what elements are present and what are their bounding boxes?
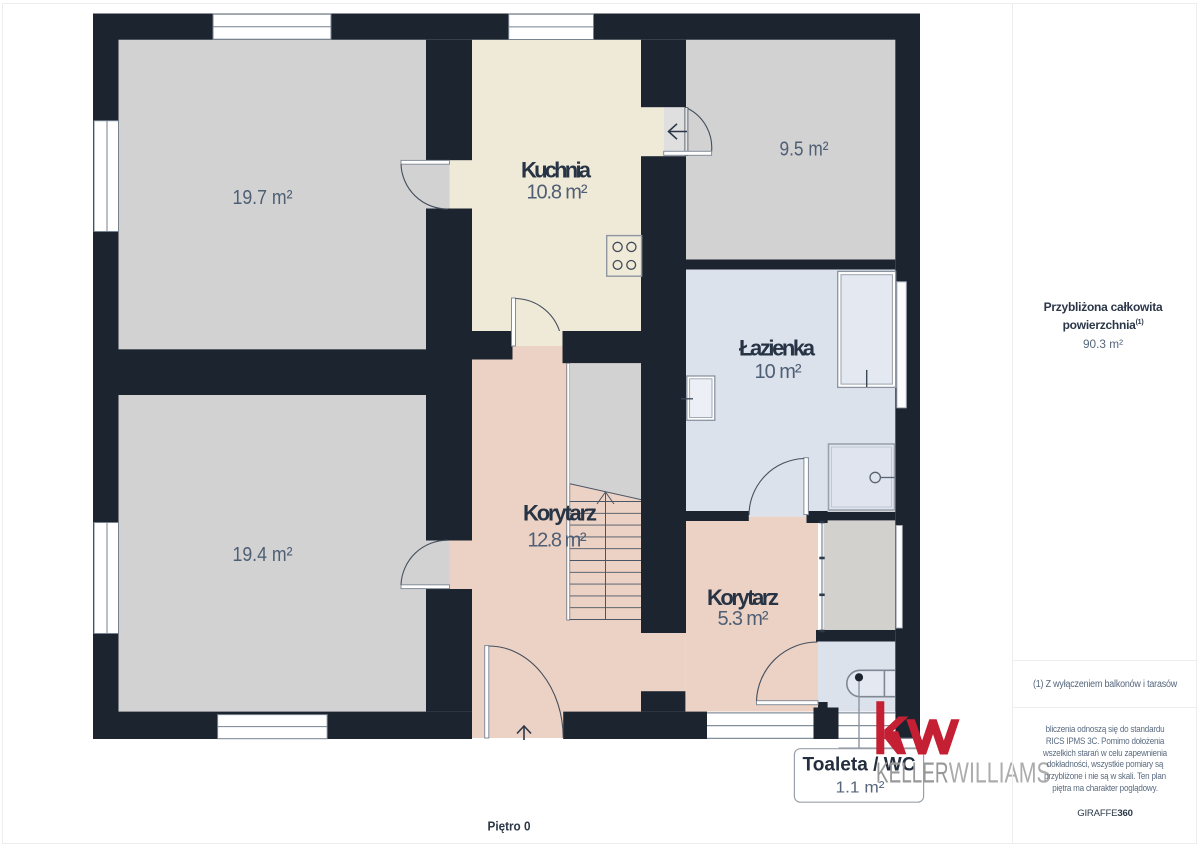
svg-text:Kuchnia: Kuchnia	[521, 158, 592, 183]
svg-text:19.4 m²: 19.4 m²	[233, 544, 293, 566]
svg-text:KELLER: KELLER	[876, 758, 949, 790]
svg-text:12.8 m²: 12.8 m²	[528, 530, 587, 552]
svg-text:Korytarz: Korytarz	[707, 585, 779, 610]
svg-text:19.7 m²: 19.7 m²	[233, 187, 293, 209]
svg-text:5.3 m²: 5.3 m²	[718, 608, 769, 630]
svg-text:10 m²: 10 m²	[755, 361, 802, 383]
svg-text:10.8 m²: 10.8 m²	[527, 182, 588, 204]
svg-text:9.5 m²: 9.5 m²	[780, 138, 829, 160]
svg-text:Korytarz: Korytarz	[523, 501, 597, 526]
svg-text:Łazienka: Łazienka	[739, 336, 816, 361]
svg-text:Piętro 0: Piętro 0	[488, 819, 531, 834]
